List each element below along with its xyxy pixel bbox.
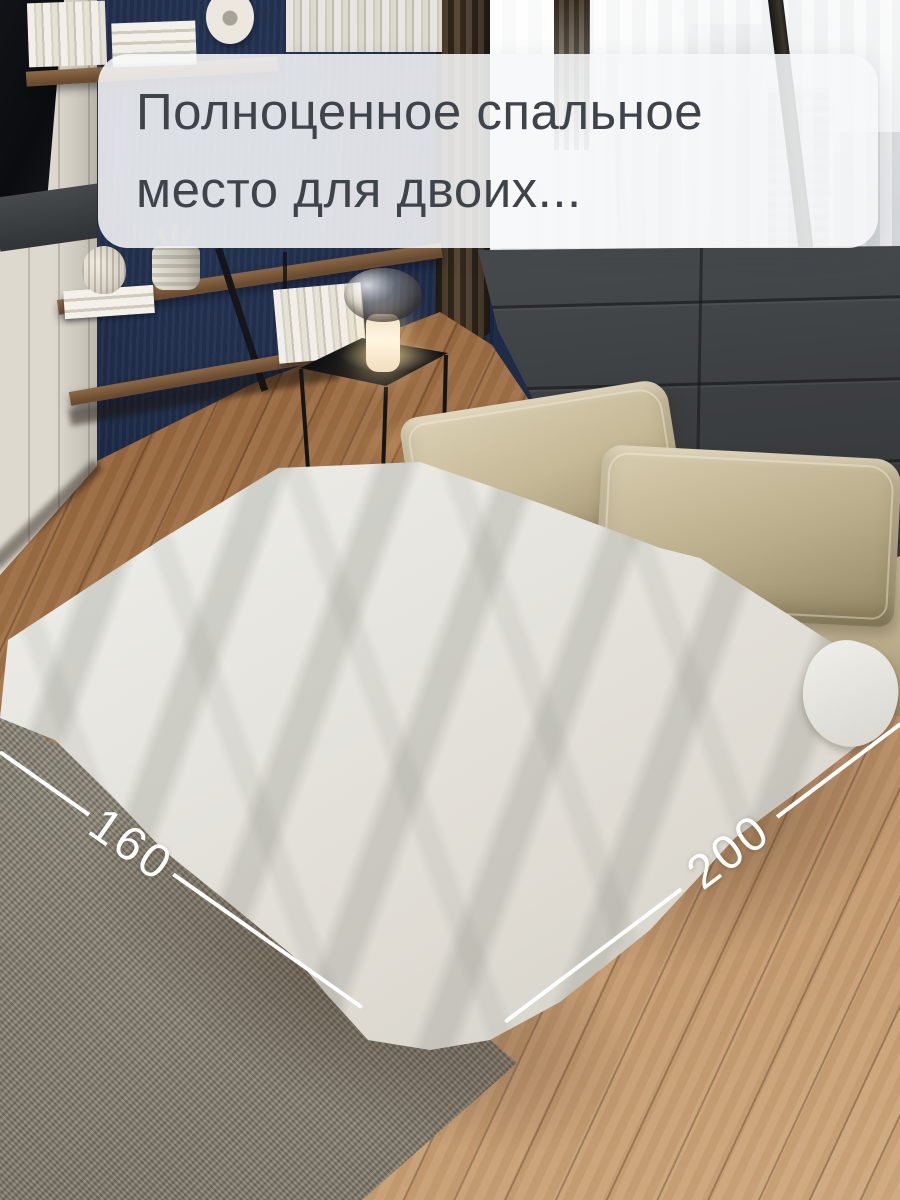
caption-line-1: Полноценное спальное xyxy=(136,82,703,141)
caption-overlay: Полноценное спальное место для двоих... xyxy=(98,54,878,248)
backrest-divider-seam xyxy=(696,247,703,475)
ribbed-vase xyxy=(82,246,126,294)
product-image-sofa-bed: 160 200 Полноценное спальное место для д… xyxy=(0,0,900,1200)
table-lamp-base xyxy=(366,314,400,372)
plant-pot xyxy=(152,246,200,290)
table-lamp-glass-dome xyxy=(344,268,422,322)
books-row xyxy=(286,0,442,52)
books-row xyxy=(27,1,107,68)
caption-line-2: место для двоих... xyxy=(136,160,582,219)
backrest-seam xyxy=(461,377,900,391)
backrest-seam xyxy=(461,295,900,309)
